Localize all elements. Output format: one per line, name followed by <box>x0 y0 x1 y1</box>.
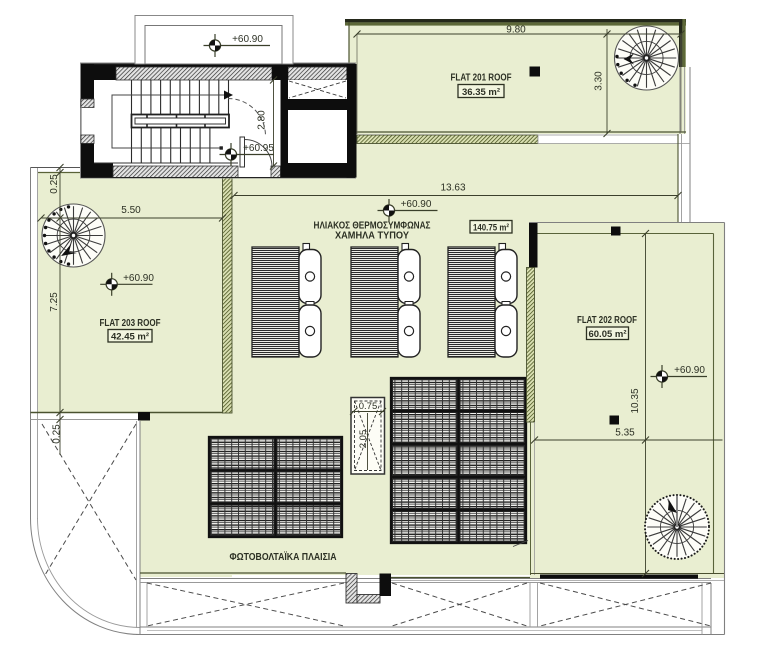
svg-text:0.25: 0.25 <box>52 424 63 444</box>
svg-text:2.05: 2.05 <box>358 430 369 449</box>
svg-text:7.25: 7.25 <box>49 292 60 312</box>
svg-text:60.05 m²: 60.05 m² <box>588 329 626 340</box>
svg-text:0.25: 0.25 <box>49 174 60 194</box>
svg-text:+60.95: +60.95 <box>243 143 274 154</box>
svg-text:36.35 m²: 36.35 m² <box>462 87 500 98</box>
svg-text:10.35: 10.35 <box>630 388 641 413</box>
svg-text:+60.90: +60.90 <box>401 199 432 210</box>
svg-text:FLAT 203 ROOF: FLAT 203 ROOF <box>100 318 161 329</box>
svg-text:140.75 m²: 140.75 m² <box>473 223 509 234</box>
svg-text:0.75: 0.75 <box>359 401 378 412</box>
svg-text:ΧΑΜΗΛΑ ΤΥΠΟΥ: ΧΑΜΗΛΑ ΤΥΠΟΥ <box>335 230 409 242</box>
svg-text:FLAT 202 ROOF: FLAT 202 ROOF <box>577 315 637 326</box>
svg-text:ΦΩΤΟΒΟΛΤΑΪΚΑ ΠΛΑΙΣΙΑ: ΦΩΤΟΒΟΛΤΑΪΚΑ ΠΛΑΙΣΙΑ <box>230 550 337 563</box>
svg-text:+60.90: +60.90 <box>123 273 154 284</box>
svg-text:2.80: 2.80 <box>257 110 268 130</box>
svg-text:FLAT 201 ROOF: FLAT 201 ROOF <box>451 73 512 84</box>
svg-text:13.63: 13.63 <box>440 183 465 194</box>
svg-text:3.30: 3.30 <box>594 71 605 91</box>
svg-text:42.45 m²: 42.45 m² <box>111 332 149 343</box>
svg-text:+60.90: +60.90 <box>232 34 263 45</box>
svg-text:5.50: 5.50 <box>121 205 141 216</box>
svg-text:5.35: 5.35 <box>615 428 635 439</box>
svg-text:9.80: 9.80 <box>506 25 526 36</box>
svg-text:+60.90: +60.90 <box>674 365 705 376</box>
